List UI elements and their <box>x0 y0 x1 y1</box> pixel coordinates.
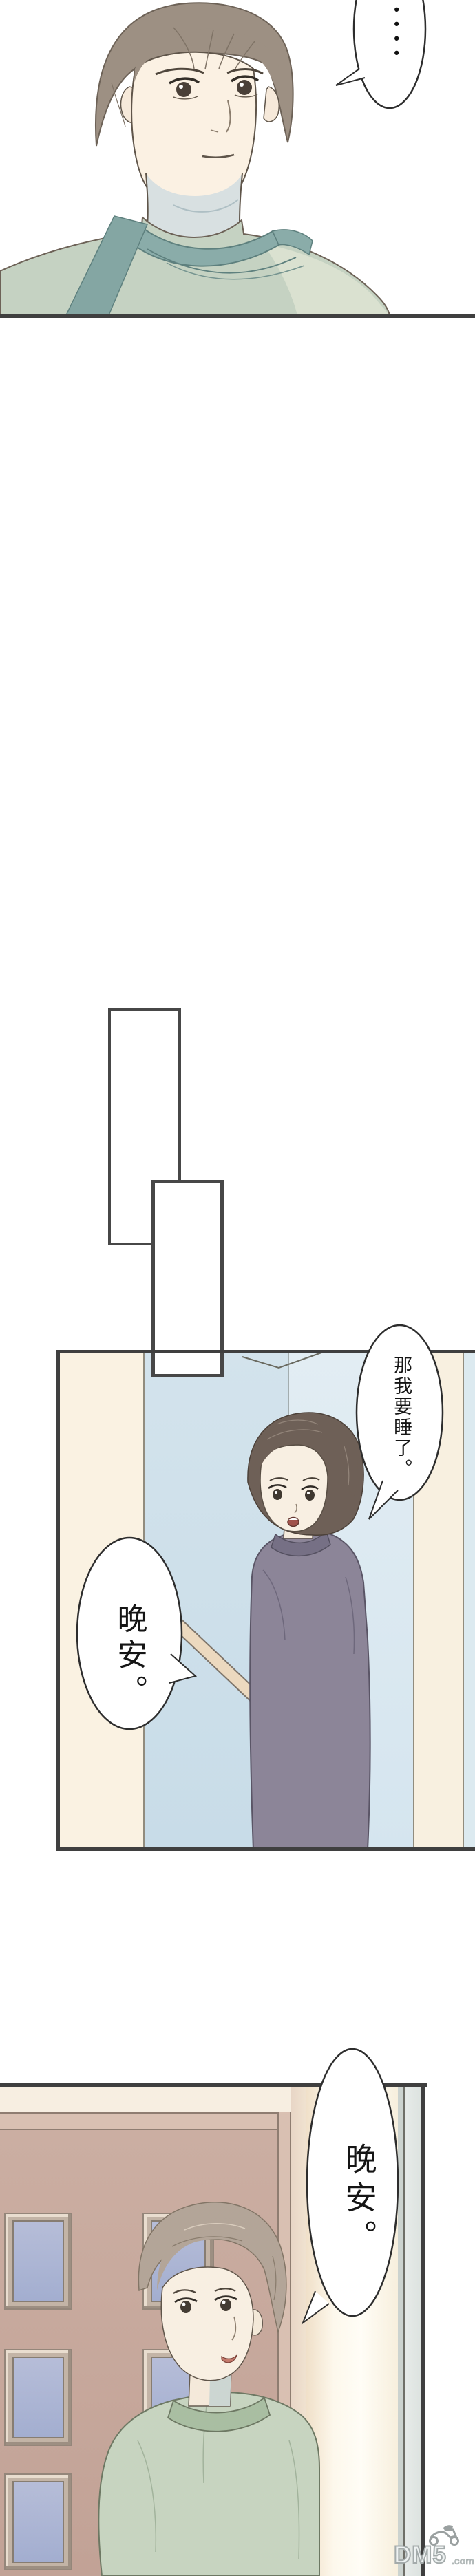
speech-text-goodnight-2: 晚安。 <box>341 2143 376 2258</box>
panel-3-border-bottom <box>56 1847 475 1851</box>
panel-3-border-top-overlay <box>151 1350 224 1353</box>
watermark-domain-suffix: .com <box>452 2555 474 2566</box>
speech-bubble-goodnight-right: 晚安。 <box>288 2038 425 2341</box>
comic-page: { "page_type": "vertical-comic-strip", "… <box>0 0 475 2576</box>
panel-1-border-bottom <box>0 314 475 318</box>
panel-3-border-left <box>56 1350 60 1850</box>
speech-bubble-sleep: 那我要睡了。 <box>344 1316 461 1529</box>
empty-frame-2 <box>151 1180 224 1377</box>
speech-bubble-goodnight-left: 晚安。 <box>63 1526 208 1746</box>
dm5-watermark: DM5 .com <box>392 2521 475 2576</box>
watermark-brand: DM5 <box>394 2543 447 2567</box>
ellipsis-text: •••• <box>388 1 405 58</box>
speech-text-sleep: 那我要睡了。 <box>391 1355 411 1479</box>
speech-text-goodnight-1: 晚安。 <box>113 1603 146 1710</box>
speech-bubble-ellipsis: •••• <box>330 0 434 117</box>
